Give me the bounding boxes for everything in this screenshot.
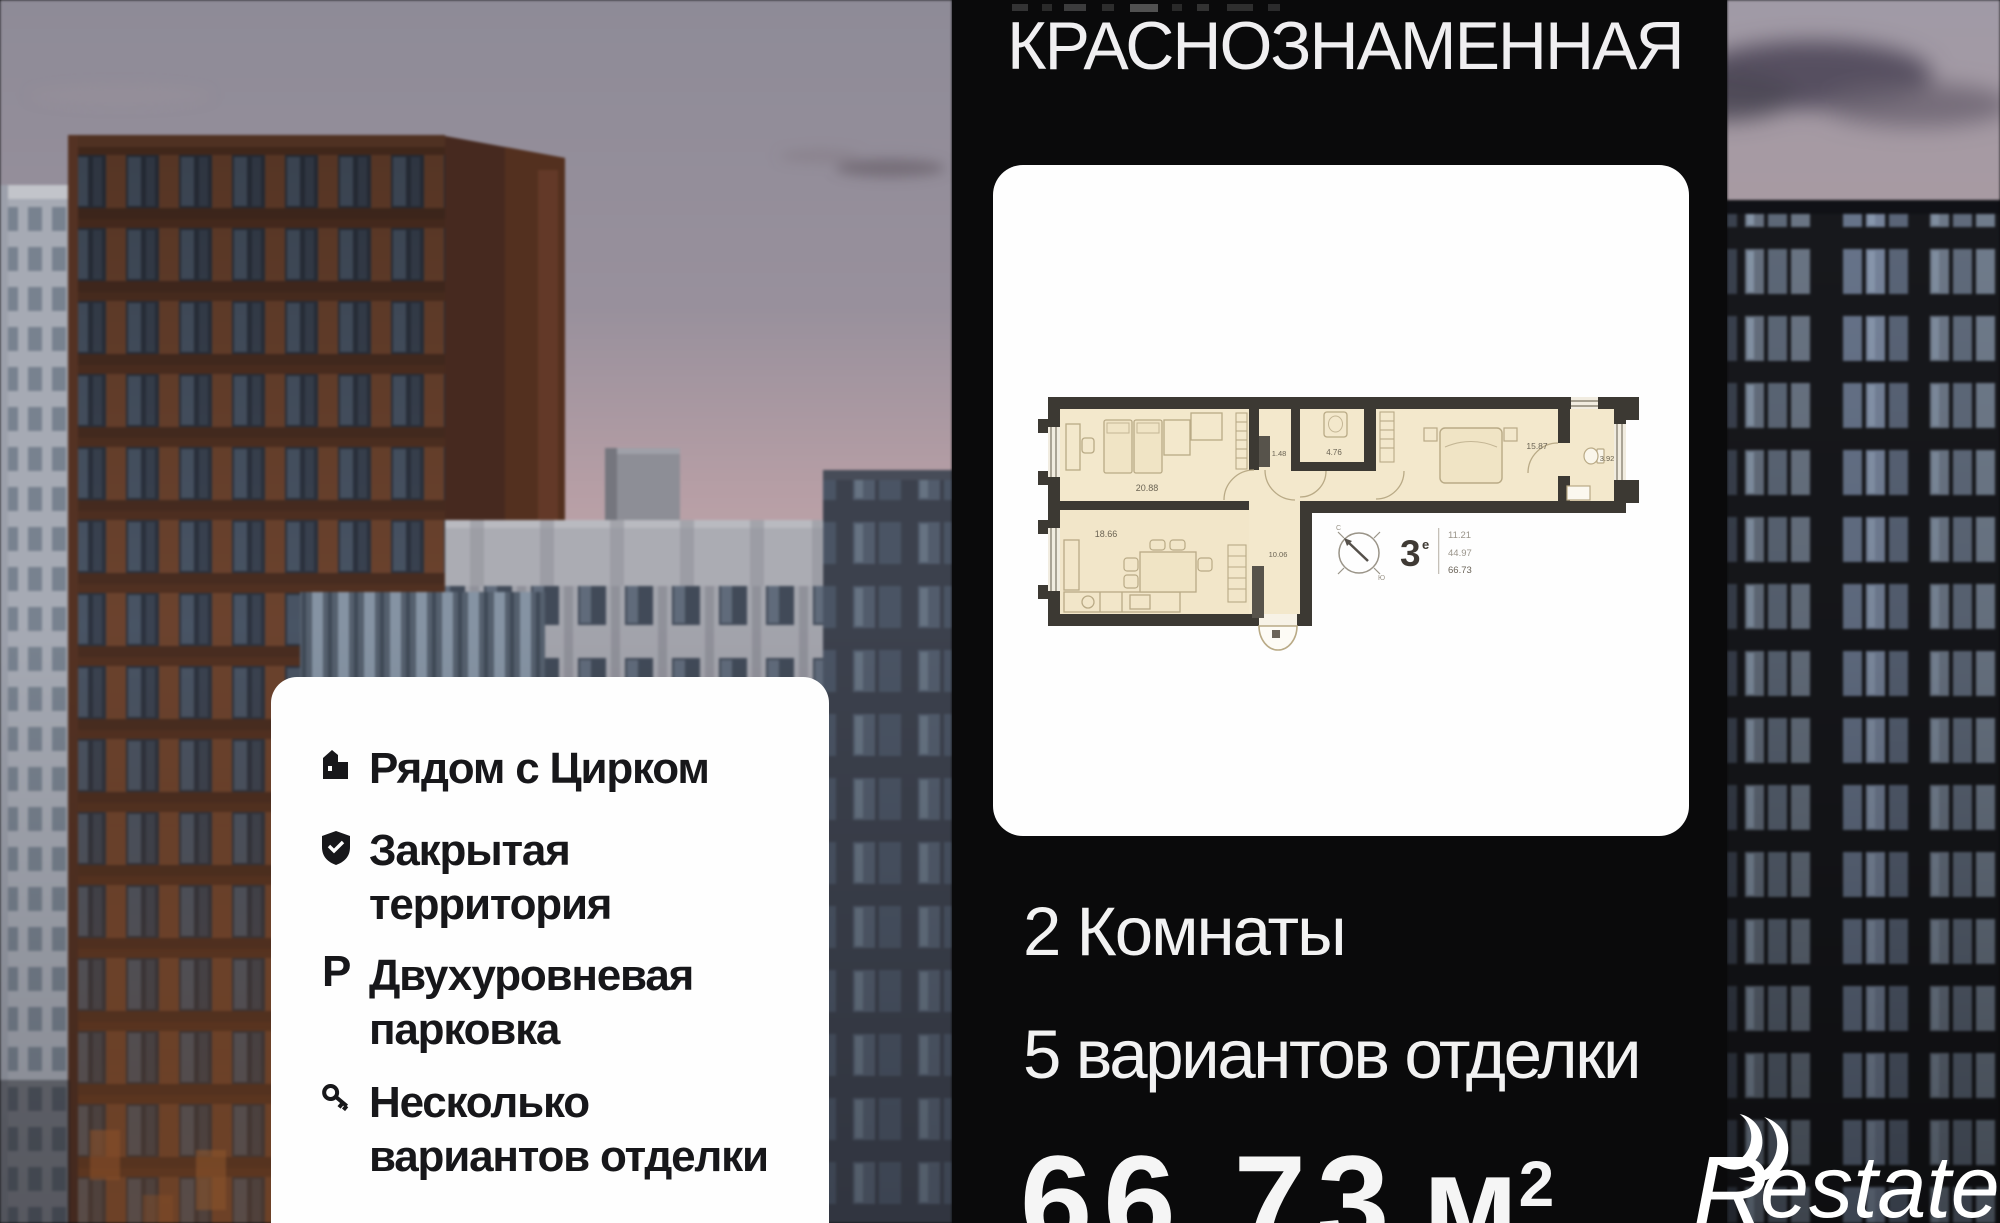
- svg-text:66.73: 66.73: [1448, 565, 1472, 576]
- svg-text:10.06: 10.06: [1269, 550, 1288, 559]
- svg-text:4.76: 4.76: [1326, 448, 1342, 457]
- svg-text:15.87: 15.87: [1526, 441, 1548, 451]
- svg-text:11.21: 11.21: [1448, 530, 1471, 541]
- svg-text:1.48: 1.48: [1272, 449, 1287, 458]
- svg-text:20.88: 20.88: [1136, 483, 1159, 493]
- svg-text:18.66: 18.66: [1095, 529, 1118, 539]
- svg-text:е: е: [1422, 537, 1429, 552]
- svg-text:С: С: [1336, 525, 1341, 532]
- svg-text:estate: estate: [1760, 1137, 2000, 1223]
- svg-text:R: R: [1692, 1135, 1769, 1223]
- svg-text:3.92: 3.92: [1600, 454, 1615, 463]
- svg-text:Ю: Ю: [1378, 575, 1385, 582]
- svg-text:3: 3: [1400, 533, 1421, 574]
- svg-text:44.97: 44.97: [1448, 548, 1472, 559]
